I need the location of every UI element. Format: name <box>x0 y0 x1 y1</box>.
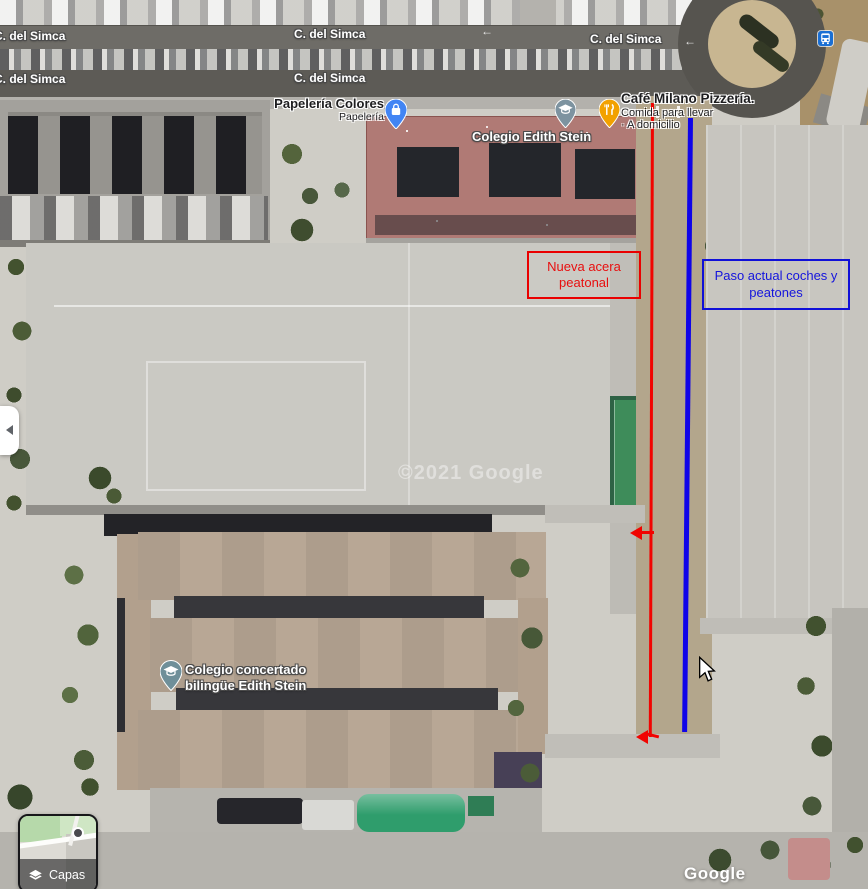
mouse-cursor <box>698 656 716 684</box>
street-label-simca-4: C. del Simca <box>294 71 365 85</box>
poi-colegio-small-label[interactable]: Colegio Edith Stein <box>472 130 591 144</box>
layers-overlay: Capas <box>20 859 96 889</box>
poi-papeleria-subtitle: Papelería <box>252 111 384 123</box>
restaurant-pin-icon[interactable] <box>599 99 620 128</box>
street-label-simca-5: C. del Simca <box>590 32 661 46</box>
sat-townhouse-roofs <box>8 112 262 194</box>
minimap-marker <box>72 827 84 839</box>
road-direction-arrow: ← <box>481 24 493 38</box>
road-direction-arrow: ← <box>684 34 696 48</box>
blue-annotation-text: Paso actual coches y peatones <box>704 268 848 301</box>
sat-tree <box>76 450 126 510</box>
bus-stop-icon[interactable] <box>818 31 833 46</box>
sat-parking-lot-right <box>706 125 868 625</box>
sat-walkway <box>545 505 645 523</box>
poi-colegio-main-line2: bilingüe Edith Stein <box>185 678 306 694</box>
sat-school-wing <box>138 710 542 790</box>
poi-cafe-line2: Comida para llevar <box>621 107 755 120</box>
poi-colegio-main-line1: Colegio concertado <box>185 662 306 678</box>
red-arrow-mid-shaft <box>641 531 654 534</box>
sat-pink-roof <box>788 838 830 880</box>
sat-green-structure <box>468 796 494 816</box>
sat-building-shadow <box>375 215 657 235</box>
red-annotation-text: Nueva acera peatonal <box>529 259 639 292</box>
sat-bus-vehicle <box>217 798 303 824</box>
school-pin-icon[interactable] <box>555 99 576 128</box>
collapse-arrow-icon <box>6 425 13 435</box>
sat-courtyard <box>397 147 459 197</box>
sat-roundabout-island <box>708 0 796 88</box>
blue-annotation-box: Paso actual coches y peatones <box>702 259 850 310</box>
poi-cafe-title: Café Milano Pizzería. <box>621 92 755 107</box>
sat-walkway <box>545 734 720 758</box>
sat-school-wing <box>138 532 546 600</box>
google-watermark[interactable]: Google <box>684 864 746 884</box>
sat-trees-left-edge <box>0 245 40 515</box>
school-pin-icon[interactable] <box>160 660 182 691</box>
sat-court-line <box>54 305 614 307</box>
sat-top-side-road <box>520 0 556 26</box>
poi-colegio-main-label[interactable]: Colegio concertado bilingüe Edith Stein <box>185 662 306 693</box>
street-label-simca-2: C. del Simca <box>294 27 365 41</box>
poi-papeleria-label[interactable]: Papelería Colores Papelería <box>252 97 384 123</box>
sat-truck-vehicle <box>302 800 354 830</box>
red-annotation-box: Nueva acera peatonal <box>527 251 641 299</box>
sat-trees-mid <box>262 120 380 250</box>
poi-cafe-label[interactable]: Café Milano Pizzería. Comida para llevar… <box>621 92 755 132</box>
sat-courtyard <box>489 143 561 197</box>
sat-trees-school-right <box>496 538 554 798</box>
poi-cafe-line3: · A domicilio <box>621 119 755 132</box>
sat-court-outline <box>146 361 366 491</box>
side-panel-collapse-button[interactable] <box>0 406 19 455</box>
shopping-bag-pin-icon[interactable] <box>385 99 407 129</box>
satellite-map[interactable]: ©2021 Google Nueva acera peatonal Paso a… <box>0 0 868 889</box>
sat-green-tank <box>357 794 465 832</box>
sat-courtyard <box>575 149 635 199</box>
sat-roof-shadow <box>117 598 125 732</box>
sat-townhouse-block <box>0 100 270 245</box>
sat-townhouse-row2 <box>0 196 268 240</box>
layers-icon <box>28 868 43 883</box>
poi-papeleria-title: Papelería Colores <box>252 97 384 111</box>
red-arrow-bottom <box>636 730 648 744</box>
layers-control[interactable]: Capas <box>18 814 98 889</box>
map-copyright-watermark: ©2021 Google <box>398 462 544 485</box>
street-label-simca-1: C. del Simca <box>0 29 65 43</box>
street-label-simca-3: C. del Simca <box>0 72 65 86</box>
layers-label: Capas <box>49 868 85 882</box>
